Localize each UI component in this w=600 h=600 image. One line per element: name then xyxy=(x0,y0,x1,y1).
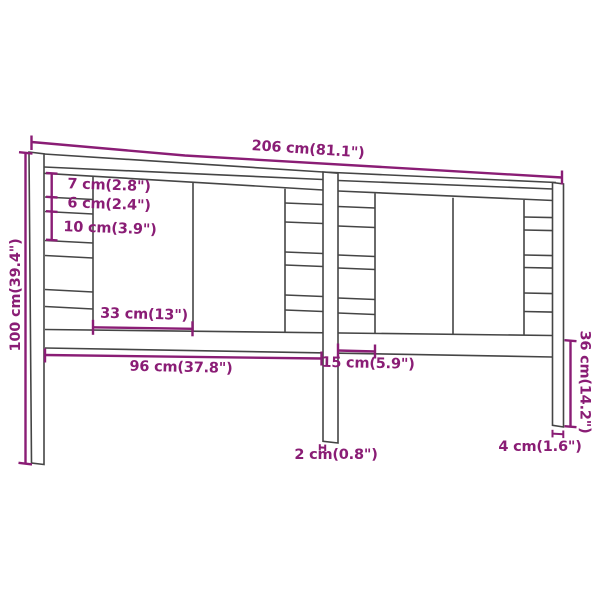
headboard-dimension-diagram: 206 cm(81.1") 100 cm(39.4") 7 cm(2.8") 6… xyxy=(0,0,600,600)
dimension-label-leg-36: 36 cm(14.2") xyxy=(577,330,592,433)
headboard-line-art xyxy=(0,0,600,600)
bottom-rail xyxy=(45,330,552,358)
center-post-leg xyxy=(323,172,338,443)
dim-line-leg-36 xyxy=(565,340,577,427)
dimension-label-gap-6: 6 cm(2.4") xyxy=(67,196,151,213)
left-post-leg xyxy=(29,152,44,465)
slat-lines-right xyxy=(524,217,552,312)
dimension-label-leg-4: 4 cm(1.6") xyxy=(498,440,581,455)
dimension-label-panel-33: 33 cm(13") xyxy=(100,307,188,324)
dimension-label-thickness-2: 2 cm(0.8") xyxy=(294,448,377,463)
dimension-label-total-height: 100 cm(39.4") xyxy=(9,238,24,351)
dimension-label-slat-len-15: 15 cm(5.9") xyxy=(321,356,415,372)
slat-lines-mid-left xyxy=(285,203,323,312)
dim-bracket-slats xyxy=(46,173,58,240)
dim-bracket-leg-4 xyxy=(553,430,564,438)
dimension-label-span-96: 96 cm(37.8") xyxy=(129,360,232,377)
right-post-leg xyxy=(553,183,564,428)
dimension-label-slat-10: 10 cm(3.9") xyxy=(63,220,157,238)
dimension-label-slat-7: 7 cm(2.8") xyxy=(67,177,151,194)
slat-lines-mid-right xyxy=(338,207,375,315)
